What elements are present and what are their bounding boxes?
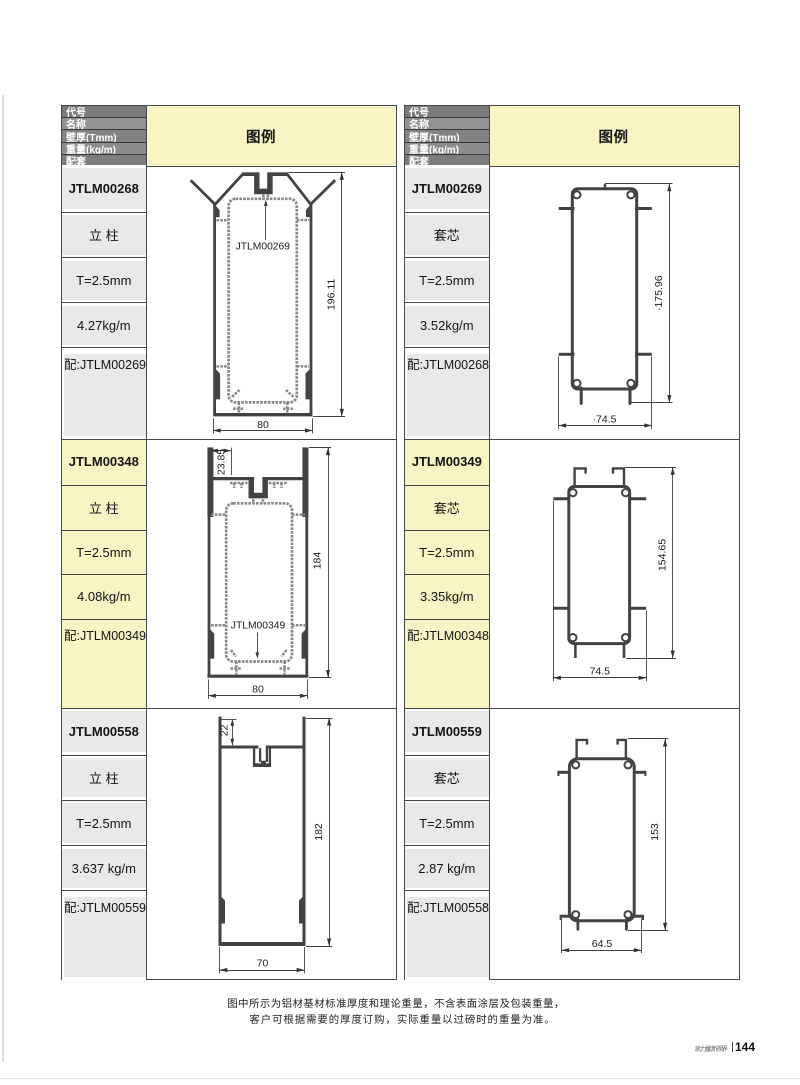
svg-text:70: 70 xyxy=(257,958,269,970)
svg-text:184: 184 xyxy=(312,552,324,570)
svg-text:80: 80 xyxy=(257,419,269,431)
svg-text:JTLM00269: JTLM00269 xyxy=(236,242,291,253)
svg-text:JTLM00349: JTLM00349 xyxy=(231,620,286,631)
svg-text:23.85: 23.85 xyxy=(216,449,228,475)
svg-text:153: 153 xyxy=(649,823,661,841)
svg-text:196.11: 196.11 xyxy=(326,279,338,310)
svg-text:182: 182 xyxy=(313,823,325,841)
svg-text:154.65: 154.65 xyxy=(657,539,669,571)
svg-text:·74.5: ·74.5 xyxy=(593,413,617,425)
svg-text:22: 22 xyxy=(218,724,230,736)
svg-text:80: 80 xyxy=(252,684,264,696)
svg-text:·175.96: ·175.96 xyxy=(653,275,665,311)
svg-text:64.5: 64.5 xyxy=(592,938,613,950)
svg-text:74.5: 74.5 xyxy=(590,666,611,678)
